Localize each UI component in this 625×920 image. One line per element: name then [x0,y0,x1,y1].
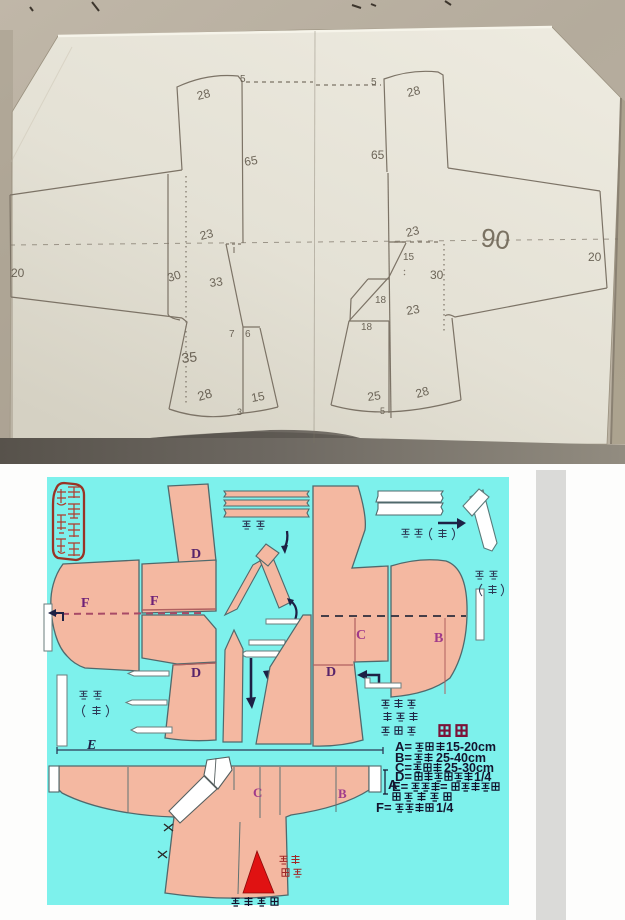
svg-text:3: 3 [237,407,242,417]
svg-text:E: E [86,738,96,753]
svg-text:20: 20 [11,266,25,280]
svg-text:D: D [191,666,201,681]
svg-text:25: 25 [366,388,381,404]
svg-text:D: D [326,665,336,680]
svg-text:5: 5 [240,74,246,85]
svg-text:F: F [150,594,159,609]
svg-text:65: 65 [371,148,385,162]
svg-text:90: 90 [479,222,511,255]
svg-text:=: = [440,779,448,794]
svg-text:18: 18 [375,295,387,306]
svg-text:F=: F= [376,800,392,815]
svg-text:35: 35 [181,348,198,366]
svg-text:18: 18 [361,322,373,333]
svg-text:C: C [356,628,366,643]
svg-text:33: 33 [208,274,223,290]
svg-text:B: B [338,786,347,801]
svg-text:C: C [253,785,262,800]
svg-text:F: F [81,596,90,611]
svg-text:A: A [388,777,398,792]
svg-text:15: 15 [250,389,266,405]
svg-text:65: 65 [243,153,259,169]
svg-text:D: D [191,547,201,562]
svg-text:23: 23 [405,302,421,318]
svg-text:30: 30 [430,268,444,282]
svg-text:7: 7 [229,329,235,340]
svg-text:5: 5 [380,406,385,416]
svg-text:20: 20 [588,250,602,264]
svg-text:15: 15 [403,252,415,263]
svg-text:6: 6 [245,329,251,340]
svg-text:B: B [434,631,443,646]
svg-text:1/4: 1/4 [436,801,453,815]
svg-text:1/4: 1/4 [474,770,491,784]
svg-text:5: 5 [371,77,377,88]
